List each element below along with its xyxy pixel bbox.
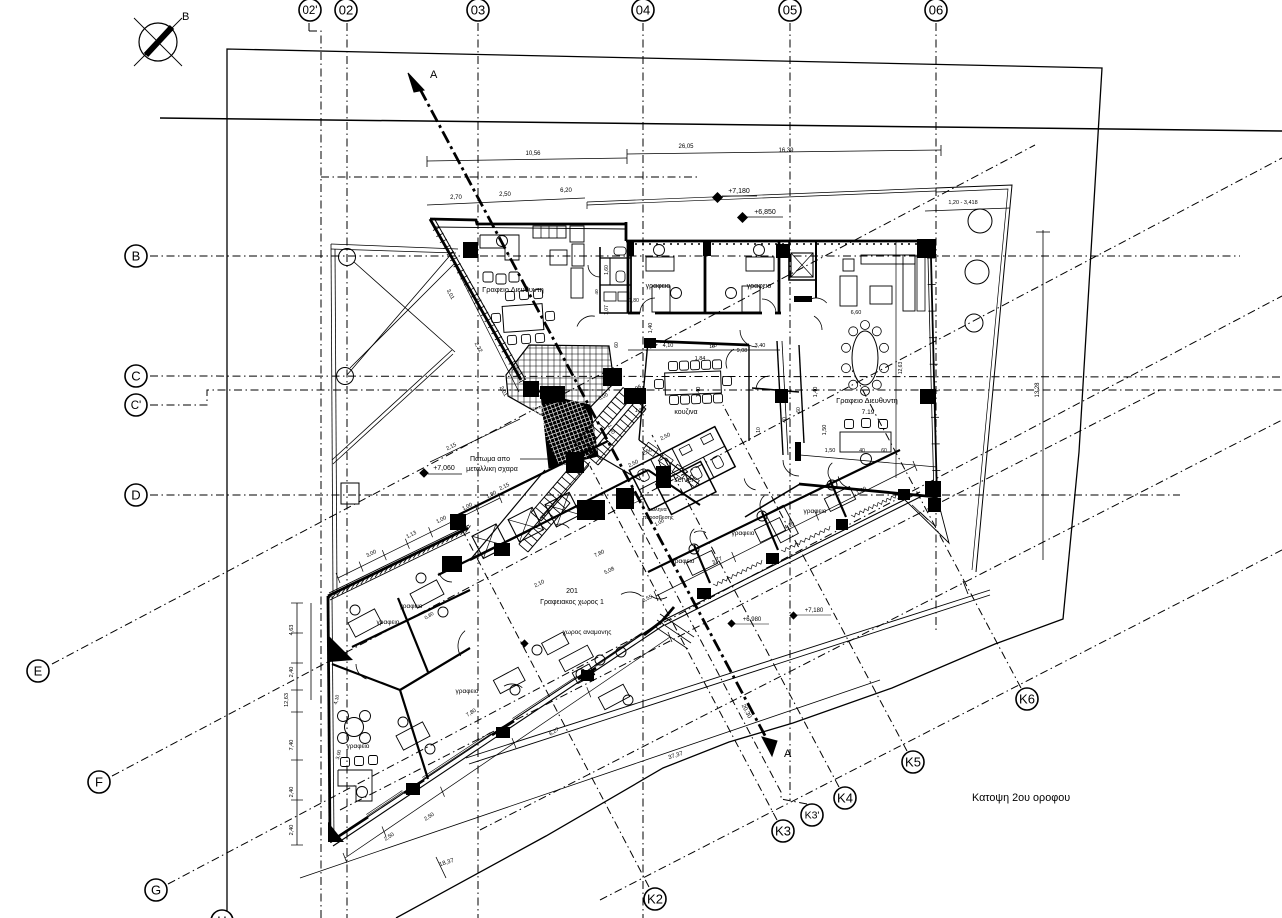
svg-text:06: 06 — [929, 3, 943, 18]
svg-text:Γραφειακος χωρος 1: Γραφειακος χωρος 1 — [540, 599, 604, 606]
svg-text:E: E — [34, 664, 43, 679]
svg-text:2,70: 2,70 — [450, 195, 462, 201]
svg-text:12,63: 12,63 — [898, 362, 904, 375]
svg-text:γραφειο: γραφειο — [747, 283, 772, 290]
svg-text:K4: K4 — [837, 791, 853, 806]
svg-text:10: 10 — [756, 427, 762, 433]
svg-text:+7,060: +7,060 — [433, 465, 455, 472]
svg-text:γραφειο: γραφειο — [456, 688, 479, 695]
svg-text:1,40: 1,40 — [648, 323, 654, 334]
svg-text:+6,980: +6,980 — [743, 617, 762, 623]
svg-text:6,60: 6,60 — [851, 310, 862, 316]
svg-text:201: 201 — [566, 588, 578, 595]
svg-text:H: H — [217, 914, 226, 918]
svg-text:1,20 - 3,418: 1,20 - 3,418 — [948, 200, 977, 206]
svg-text:1,50: 1,50 — [825, 448, 836, 454]
svg-text:server: server — [674, 477, 694, 484]
svg-text:F: F — [95, 775, 103, 790]
svg-text:2,40: 2,40 — [289, 787, 295, 798]
svg-text:K3: K3 — [775, 824, 791, 839]
svg-text:1,80: 1,80 — [629, 298, 639, 304]
svg-text:12,63: 12,63 — [284, 693, 290, 707]
svg-text:1,50: 1,50 — [822, 425, 828, 436]
svg-text:1,40: 1,40 — [696, 387, 702, 398]
svg-text:40: 40 — [782, 417, 788, 423]
svg-text:μεταλλικη σχαρα: μεταλλικη σχαρα — [466, 466, 518, 473]
svg-text:χωρος αναμονης: χωρος αναμονης — [563, 629, 612, 636]
svg-text:13,28: 13,28 — [1035, 382, 1041, 398]
svg-text:K3': K3' — [805, 810, 820, 822]
svg-text:D: D — [131, 488, 140, 503]
svg-text:Κατοψη 2ου οροφου: Κατοψη 2ου οροφου — [972, 792, 1070, 804]
svg-text:γραφειο: γραφειο — [400, 603, 423, 610]
svg-text:40: 40 — [594, 289, 600, 295]
svg-text:Γραφειο Διευθυντη: Γραφειο Διευθυντη — [482, 285, 544, 294]
svg-text:1,84: 1,84 — [695, 356, 706, 362]
svg-text:2,40: 2,40 — [289, 825, 295, 836]
svg-text:2,40: 2,40 — [289, 667, 295, 678]
svg-text:γραφειο: γραφειο — [377, 619, 400, 626]
svg-text:3,40: 3,40 — [755, 343, 766, 349]
svg-text:2,50: 2,50 — [499, 192, 511, 198]
svg-text:05: 05 — [783, 3, 797, 18]
svg-text:A: A — [430, 69, 438, 81]
svg-text:1,40: 1,40 — [813, 387, 819, 398]
svg-text:4,10: 4,10 — [663, 343, 674, 349]
svg-text:γραφειο: γραφειο — [672, 558, 695, 565]
svg-text:1,60: 1,60 — [604, 265, 610, 275]
svg-text:A: A — [784, 748, 792, 760]
svg-text:K6: K6 — [1019, 692, 1035, 707]
svg-text:γραφειο: γραφειο — [347, 743, 370, 750]
svg-text:40: 40 — [859, 448, 865, 454]
svg-text:4,63: 4,63 — [289, 625, 295, 636]
svg-text:Γραφειο Διευθυντη: Γραφειο Διευθυντη — [836, 396, 898, 405]
svg-text:+6,850: +6,850 — [754, 209, 776, 216]
svg-text:B: B — [132, 249, 141, 264]
svg-text:04: 04 — [636, 3, 650, 18]
svg-text:K5: K5 — [905, 755, 921, 770]
svg-text:G: G — [151, 883, 161, 898]
svg-text:26,05: 26,05 — [678, 144, 694, 150]
svg-text:C: C — [131, 369, 140, 384]
svg-text:7,40: 7,40 — [289, 740, 295, 751]
svg-text:60: 60 — [796, 407, 802, 413]
svg-text:02: 02 — [339, 3, 353, 18]
svg-text:03: 03 — [471, 3, 485, 18]
svg-text:10,56: 10,56 — [525, 151, 541, 157]
svg-text:1,50: 1,50 — [635, 408, 646, 414]
svg-text:κουζινα: κουζινα — [674, 409, 697, 416]
svg-text:B: B — [182, 11, 189, 23]
svg-text:+7,180: +7,180 — [728, 188, 750, 195]
svg-text:60: 60 — [614, 342, 620, 348]
svg-text:6,20: 6,20 — [560, 188, 572, 194]
svg-text:60: 60 — [881, 448, 887, 454]
svg-text:γραφειο: γραφειο — [646, 283, 671, 290]
svg-text:1,07: 1,07 — [604, 305, 610, 315]
svg-text:σωληνα: σωληνα — [647, 507, 667, 513]
svg-text:C': C' — [131, 400, 142, 412]
svg-text:γραφειο: γραφειο — [732, 530, 755, 537]
svg-text:02': 02' — [303, 5, 318, 17]
svg-text:16,39: 16,39 — [778, 148, 794, 154]
svg-text:+7,180: +7,180 — [805, 608, 824, 614]
svg-text:10: 10 — [711, 343, 717, 349]
svg-text:9,08: 9,08 — [737, 348, 748, 354]
svg-text:Πατωμα απο: Πατωμα απο — [470, 456, 510, 463]
svg-text:7.19: 7.19 — [862, 409, 875, 416]
svg-text:K2: K2 — [647, 892, 663, 907]
